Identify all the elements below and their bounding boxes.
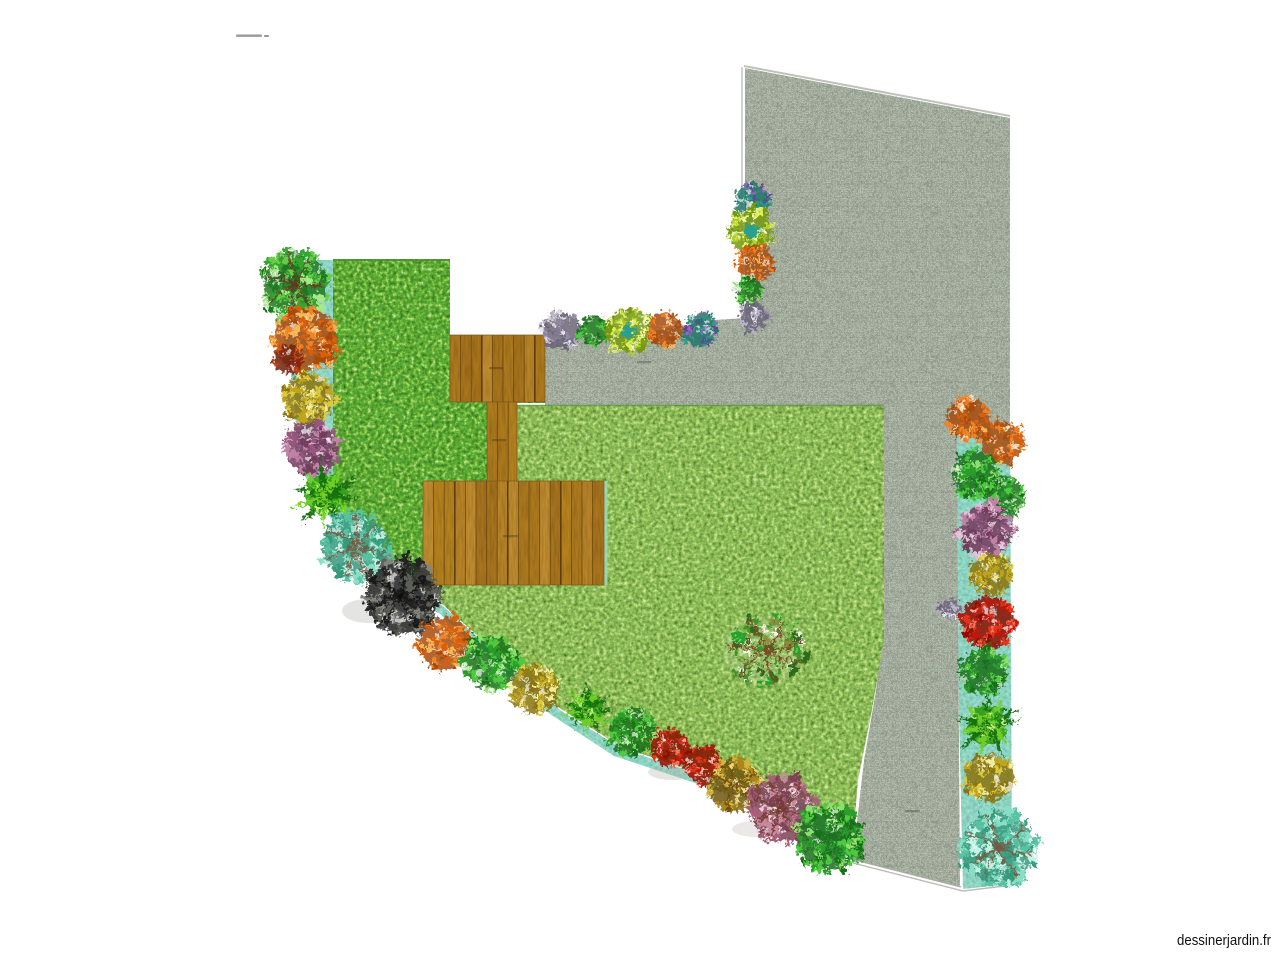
svg-text:dessinerjardin.fr: dessinerjardin.fr	[1177, 933, 1271, 949]
